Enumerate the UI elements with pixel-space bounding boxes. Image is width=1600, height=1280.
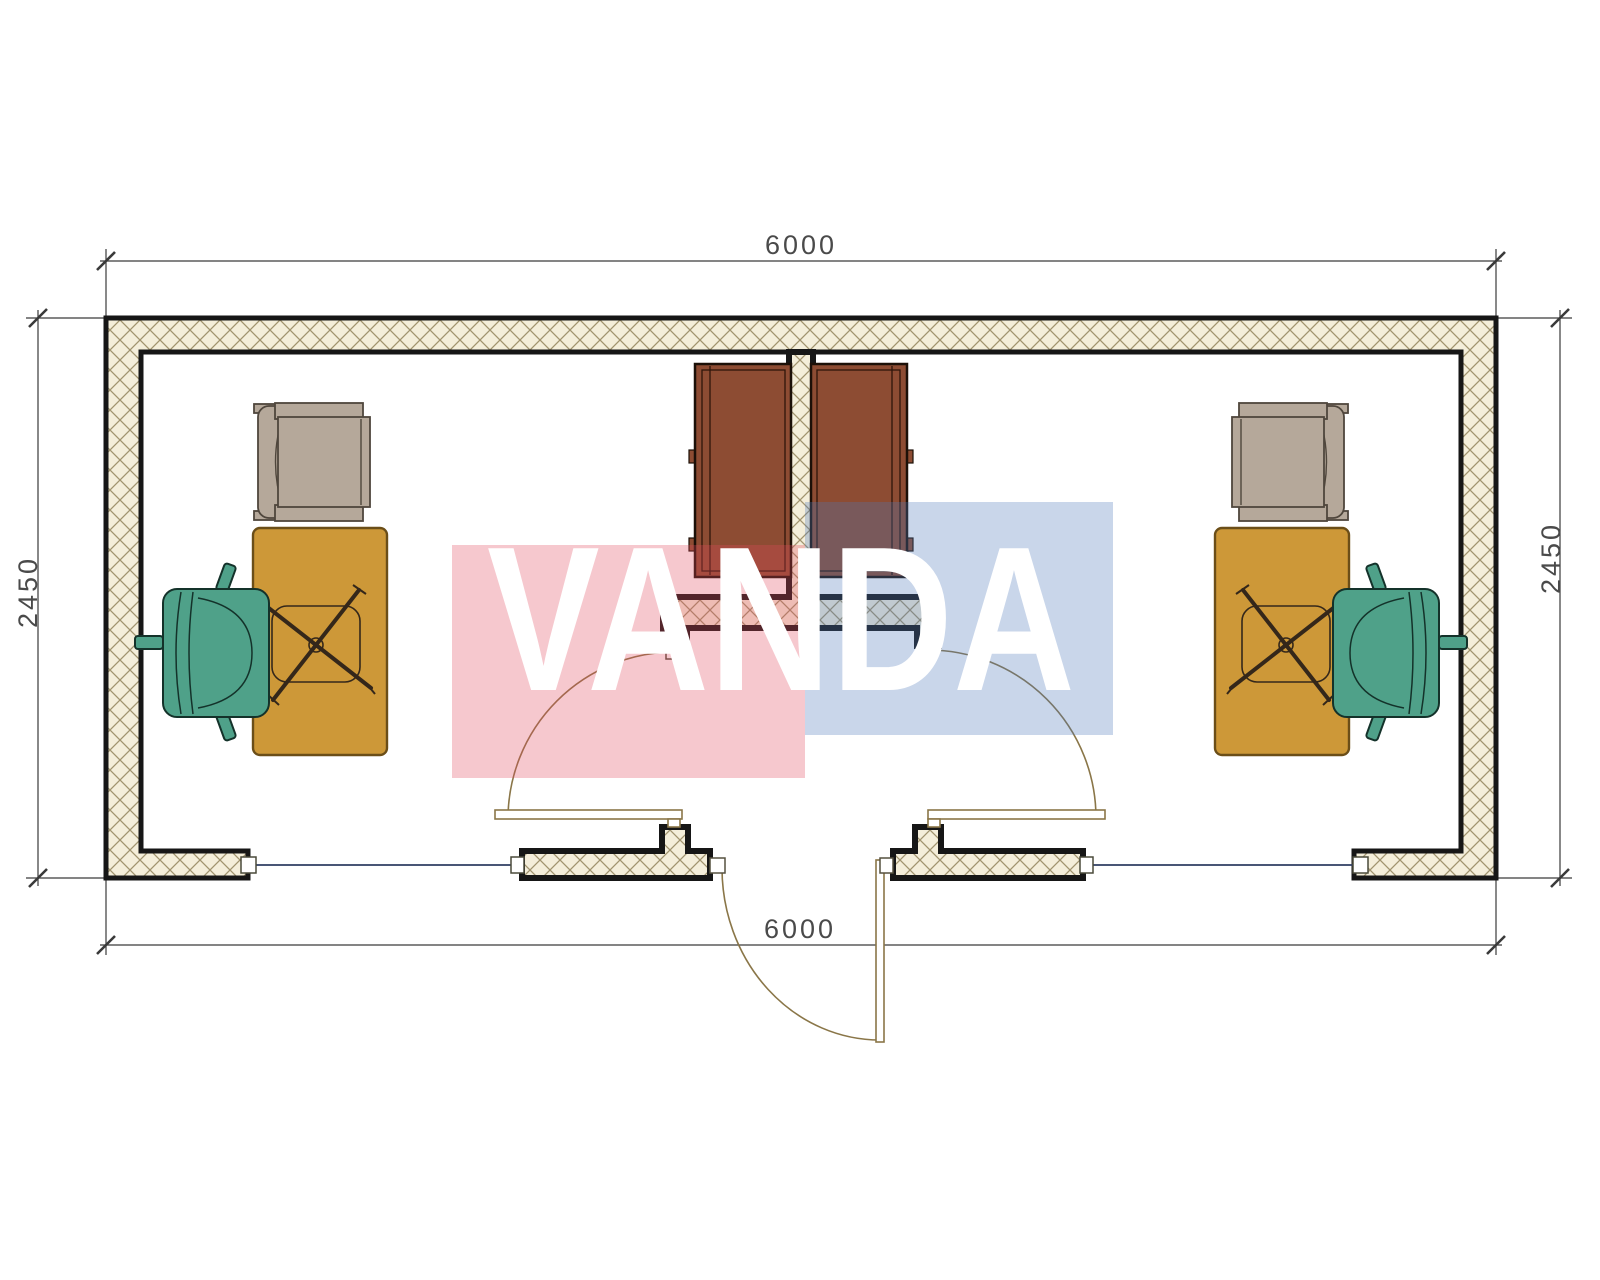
watermark-text: VANDA: [487, 504, 1075, 734]
floor-plan-canvas: 6000 6000 2450 2450: [0, 0, 1600, 1280]
task-chair-hub-center: [314, 643, 319, 648]
windows: [241, 857, 1368, 873]
dimension-left-label: 2450: [13, 556, 43, 628]
dimension-bottom-label: 6000: [764, 914, 836, 944]
watermark: VANDA: [452, 502, 1113, 778]
floor-plan: 6000 6000 2450 2450: [0, 0, 1600, 1280]
armchair: [254, 403, 370, 521]
window-end-block: [241, 857, 256, 873]
dimension-right-label: 2450: [1536, 522, 1566, 594]
door-frame-block: [710, 858, 725, 873]
door-leaf-hinge-step: [668, 819, 680, 827]
door-leaf-left-room: [495, 810, 682, 819]
window-end-block: [1080, 857, 1093, 873]
door-leaf-entrance: [876, 860, 884, 1042]
window-end-block: [1353, 857, 1368, 873]
door-leaf-hinge-step: [928, 819, 940, 827]
bottom-wall-left-segment: [522, 827, 710, 878]
door-frame-block: [880, 858, 893, 873]
bottom-wall-right-segment: [893, 827, 1083, 878]
door-swing-entrance: [722, 868, 880, 1040]
window-end-block: [511, 857, 524, 873]
green-chair: [135, 563, 269, 741]
green-chair-foot: [135, 636, 163, 649]
armchair-seat: [278, 417, 370, 507]
door-leaf-right-room: [928, 810, 1105, 819]
dimension-top-label: 6000: [765, 230, 837, 260]
